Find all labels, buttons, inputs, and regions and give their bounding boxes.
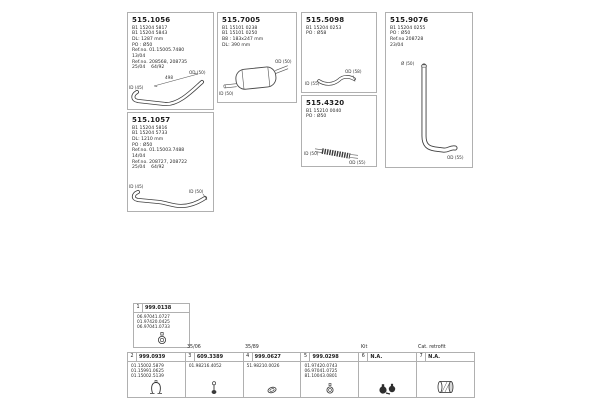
od-label: OD (55): [349, 160, 366, 165]
rubber-hanger-icon: [210, 381, 218, 395]
column-date-label: 35/06: [187, 345, 201, 350]
dim-label: 498: [165, 75, 173, 80]
cell-number: 3: [186, 353, 195, 361]
fitting-header: 1 999.0138: [134, 304, 189, 313]
pipe-diagram: 498 ID (45) OD (50): [129, 68, 212, 108]
part-box-515-4320: 515.4320 B1 15210 0040 PO : Ø50 ID (50) …: [301, 95, 377, 167]
cell-code: 999.0627: [253, 353, 301, 361]
column-cat-retrofit-label: Cat. retrofit: [418, 345, 446, 350]
spec-line: PO : Ø58: [306, 31, 373, 37]
table-cell: 6 N.A.: [358, 352, 417, 398]
cell-code: 609.3389: [195, 353, 243, 361]
table-cell: 5 999.0298 01.97420.0743 06.97041.0725 8…: [300, 352, 359, 398]
clamp-icon: [156, 332, 168, 345]
part-box-515-5098: 515.5098 B1 15204 0253 PO : Ø58 ID (55) …: [301, 12, 377, 93]
part-code: 515.7005: [222, 16, 293, 24]
table-cell: 2 999.0939 01.15002.5879 01.15991.0625 0…: [127, 352, 186, 398]
part-box-515-1057: 515.1057 B1 15204 5816 B1 15204 5733 DL:…: [127, 112, 214, 212]
cell-number: 5: [301, 353, 310, 361]
part-code: 515.4320: [306, 99, 373, 107]
catalyst-icon: [436, 379, 456, 395]
cell-code: N.A.: [426, 353, 474, 361]
column-kit-label: Kit: [361, 345, 367, 350]
od-label: ID (50): [189, 189, 204, 194]
od-label: OD (58): [345, 69, 362, 74]
cell-code: N.A.: [368, 353, 416, 361]
fitting-line: 06.97041.0733: [137, 325, 187, 330]
item-number: 1: [134, 304, 143, 312]
part-box-515-7005: 515.7005 B1 15101 0238 B1 15101 0250 B8 …: [217, 12, 297, 103]
id-label: ID (50): [219, 91, 234, 96]
table-cell: 7 N.A.: [416, 352, 475, 398]
cell-code: 999.0939: [137, 353, 185, 361]
ring-icon: [266, 385, 279, 395]
pipe-diagram: ID (45) ID (50): [129, 166, 212, 210]
id-label: ID (45): [129, 85, 144, 90]
table-cell: 3 609.3389 01.98216.4052: [185, 352, 244, 398]
flex-pipe-diagram: ID (50) OD (55): [303, 125, 375, 165]
cell-code: 999.0298: [310, 353, 358, 361]
part-code: 515.1056: [132, 16, 210, 24]
cell-line: 01.15002.5139: [131, 374, 183, 379]
catalog-page: 515.1056 B1 15204 5817 B1 15204 5843 DL:…: [0, 0, 600, 400]
id-label: ID (50): [304, 151, 319, 156]
od-label: OD (50): [189, 70, 206, 75]
part-code: 515.5098: [306, 16, 373, 24]
column-date-label: 35/89: [245, 345, 259, 350]
spec-line: PO : Ø50: [306, 114, 373, 120]
clamp-large-icon: [149, 380, 163, 395]
id-label: ID (55): [305, 81, 320, 86]
spec-line: DL: 390 mm: [222, 43, 293, 49]
cell-number: 6: [359, 353, 368, 361]
table-cell: 4 999.0627 51.98210.0026: [243, 352, 302, 398]
pipe-diagram: ID (55) OD (58): [303, 49, 375, 91]
mounting-table: 2 999.0939 01.15002.5879 01.15991.0625 0…: [128, 352, 475, 398]
kit-icon: [377, 382, 399, 395]
cell-number: 2: [128, 353, 137, 361]
part-box-515-9076: 515.9076 B1 15204 0255 PO : Ø50 Ref.no 2…: [385, 12, 473, 168]
fitting-box: 1 999.0138 06.97041.0727 01.97420.0425 0…: [133, 303, 190, 348]
fitting-code: 999.0138: [143, 304, 189, 312]
part-code: 515.1057: [132, 116, 210, 124]
cell-line: 01.98216.4052: [189, 364, 241, 369]
cell-number: 4: [244, 353, 253, 361]
od-label: OD (55): [447, 155, 464, 160]
cell-line: 51.98210.0026: [247, 364, 299, 369]
clamp-icon: [325, 383, 335, 395]
part-box-515-1056: 515.1056 B1 15204 5817 B1 15204 5843 DL:…: [127, 12, 214, 110]
muffler-diagram: ID (50) OD (50): [219, 53, 295, 101]
spec-line: 23/04: [390, 43, 469, 49]
od-label: OD (50): [275, 59, 292, 64]
id-label: ID (45): [129, 184, 144, 189]
cell-number: 7: [417, 353, 426, 361]
cell-line: 81.10043.0801: [304, 374, 356, 379]
id-label: Ø (50): [401, 61, 415, 66]
part-code: 515.9076: [390, 16, 469, 24]
pipe-diagram: Ø (50) OD (55): [387, 56, 471, 166]
